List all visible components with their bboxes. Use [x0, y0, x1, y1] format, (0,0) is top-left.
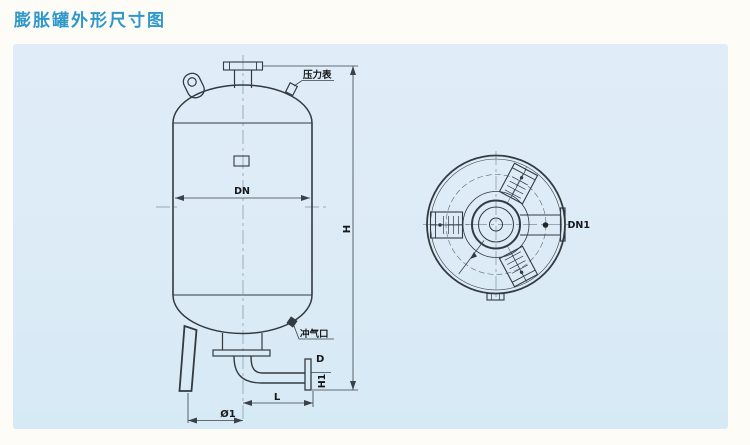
bolt-dot [543, 222, 549, 228]
outlet-flange [305, 359, 311, 390]
label-dn: DN [234, 186, 250, 197]
air-inlet-fitting: 冲气口 [286, 316, 334, 340]
dn-dimension: DN [175, 186, 310, 198]
label-h1: H1 [317, 374, 328, 389]
label-pressure-gauge: 压力表 [303, 69, 332, 81]
label-dn1: DN1 [568, 220, 590, 231]
label-l: L [274, 392, 281, 403]
label-d: D [316, 354, 324, 365]
label-phi1: Ø1 [220, 408, 236, 420]
label-air-inlet: 冲气口 [300, 328, 329, 340]
front-view: 压力表 DN H 冲气口 [156, 55, 358, 423]
radial-arrow [459, 241, 484, 275]
pressure-gauge-fitting: 压力表 [286, 69, 334, 95]
support-leg [180, 326, 197, 391]
leg-bracket-lower-right [500, 246, 538, 286]
outlet-elbow [234, 356, 305, 383]
tank-dimension-diagram: 压力表 DN H 冲气口 [0, 0, 750, 445]
bottom-tab [487, 294, 504, 301]
l-dimension: L [243, 391, 313, 407]
label-h: H [342, 225, 353, 233]
tank-outline [173, 85, 312, 334]
h1-dimension: H1 [311, 373, 331, 389]
nameplate [234, 156, 249, 166]
bottom-flange [213, 333, 270, 356]
pressure-gauge-leader [294, 81, 334, 87]
phi1-dimension: Ø1 [188, 393, 243, 423]
top-view: DN1 [423, 151, 590, 301]
